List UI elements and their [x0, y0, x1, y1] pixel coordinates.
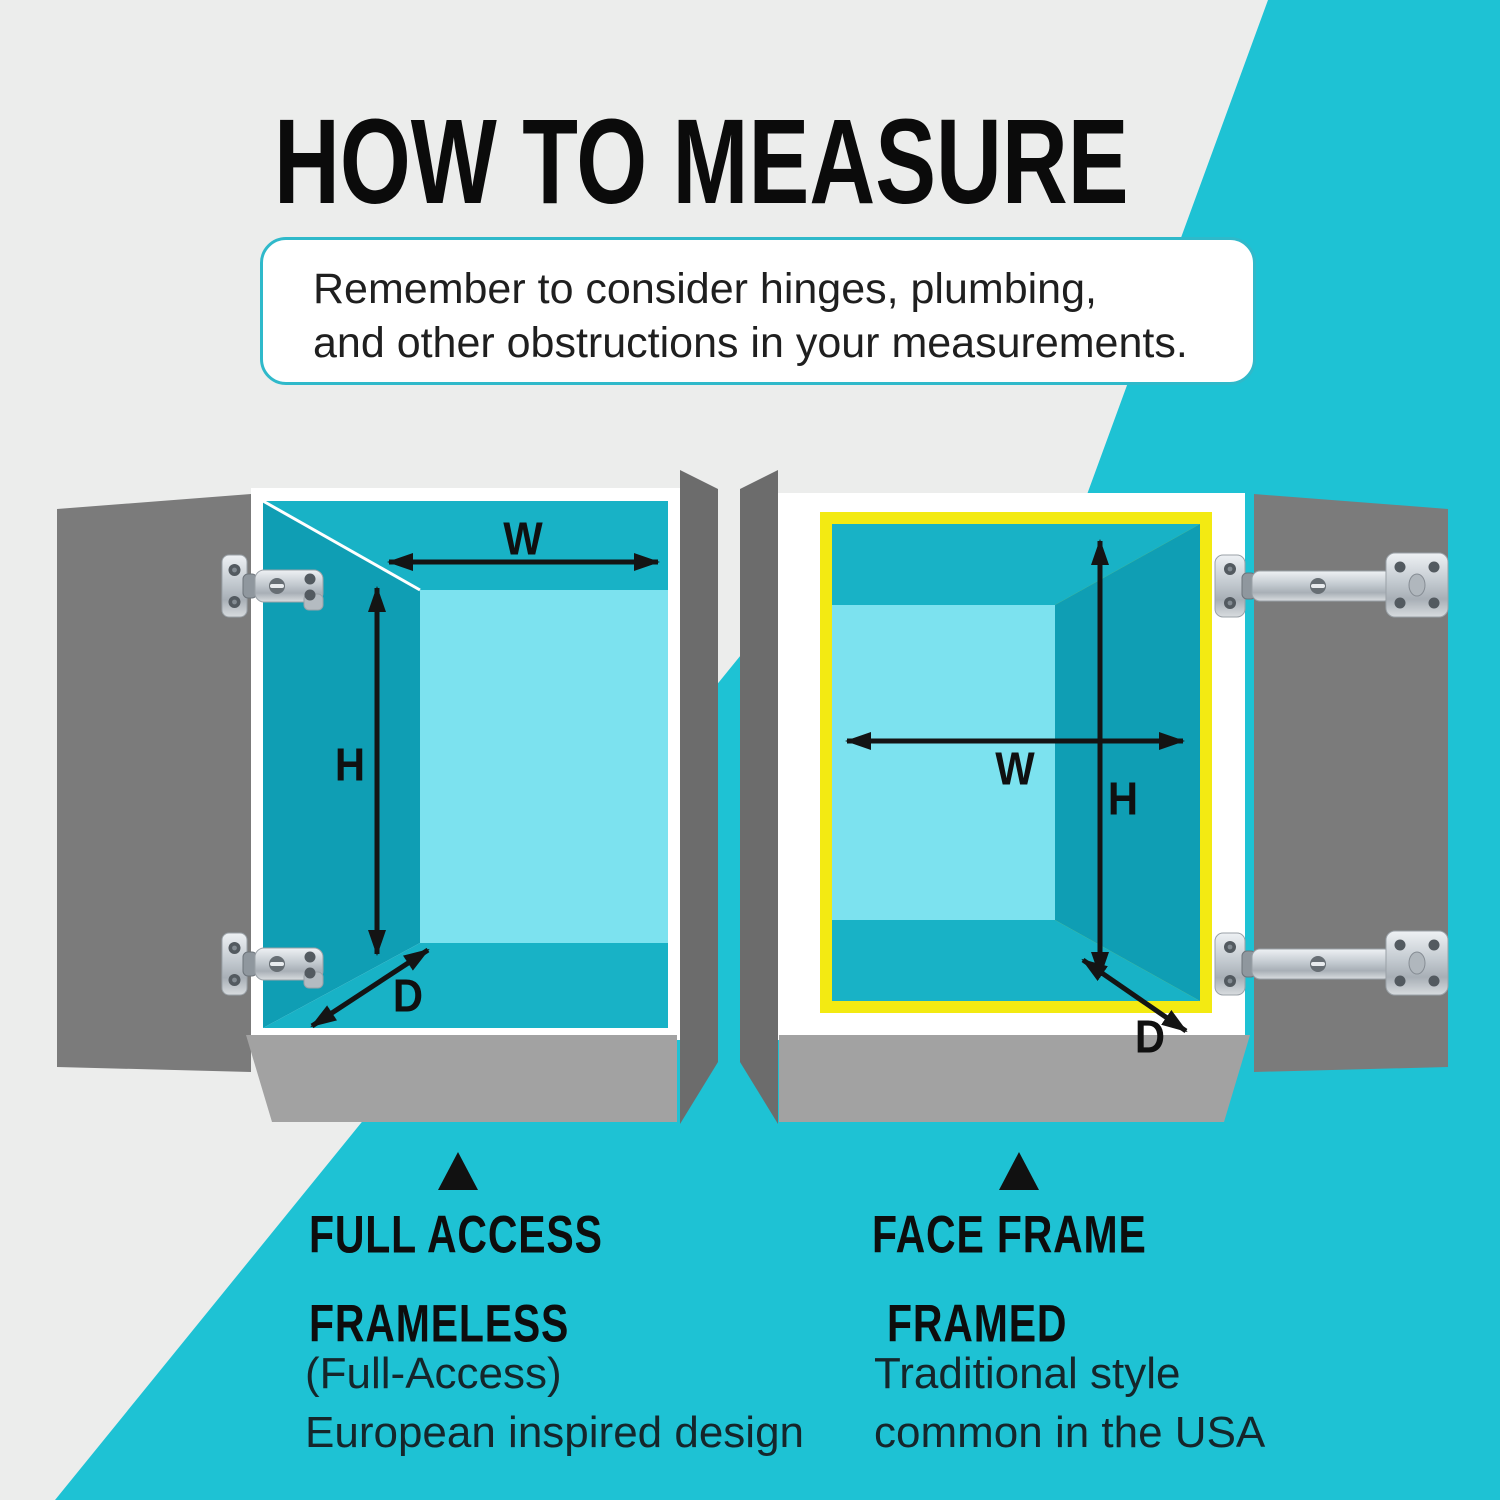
- right-width-label: W: [995, 744, 1034, 797]
- note-line-1: Remember to consider hinges, plumbing,: [313, 262, 1188, 316]
- left-column-type: FRAMELESS: [309, 1293, 569, 1354]
- left-depth-label: D: [393, 971, 423, 1024]
- left-column-desc-1: (Full-Access): [305, 1349, 562, 1399]
- right-cabinet-side-panel: [740, 470, 778, 1124]
- left-column-heading: FULL ACCESS: [309, 1204, 603, 1265]
- right-column-type: FRAMED: [887, 1293, 1067, 1354]
- infographic-canvas: HOW TO MEASURE Remember to consider hing…: [0, 0, 1500, 1500]
- right-height-label: H: [1108, 774, 1138, 827]
- right-column-desc-2: common in the USA: [874, 1408, 1265, 1458]
- right-column-desc-1: Traditional style: [874, 1349, 1181, 1399]
- right-cabinet-right-wall: [1055, 524, 1200, 1001]
- face-frame-cabinet: [740, 470, 1448, 1124]
- note-line-2: and other obstructions in your measureme…: [313, 316, 1188, 370]
- right-depth-label: D: [1135, 1012, 1165, 1065]
- right-column-heading: FACE FRAME: [872, 1204, 1147, 1265]
- left-cabinet-side-panel: [680, 470, 718, 1124]
- left-height-label: H: [335, 740, 365, 793]
- right-cabinet-pedestal: [779, 1035, 1250, 1122]
- left-cabinet-pedestal: [246, 1035, 677, 1122]
- frameless-cabinet: [57, 470, 718, 1124]
- note-box: Remember to consider hinges, plumbing, a…: [260, 237, 1256, 385]
- left-cabinet-back-wall: [420, 590, 668, 943]
- left-column-desc-2: European inspired design: [305, 1408, 804, 1458]
- left-width-label: W: [503, 514, 542, 567]
- note-text: Remember to consider hinges, plumbing, a…: [313, 262, 1188, 370]
- page-title: HOW TO MEASURE: [274, 93, 1129, 232]
